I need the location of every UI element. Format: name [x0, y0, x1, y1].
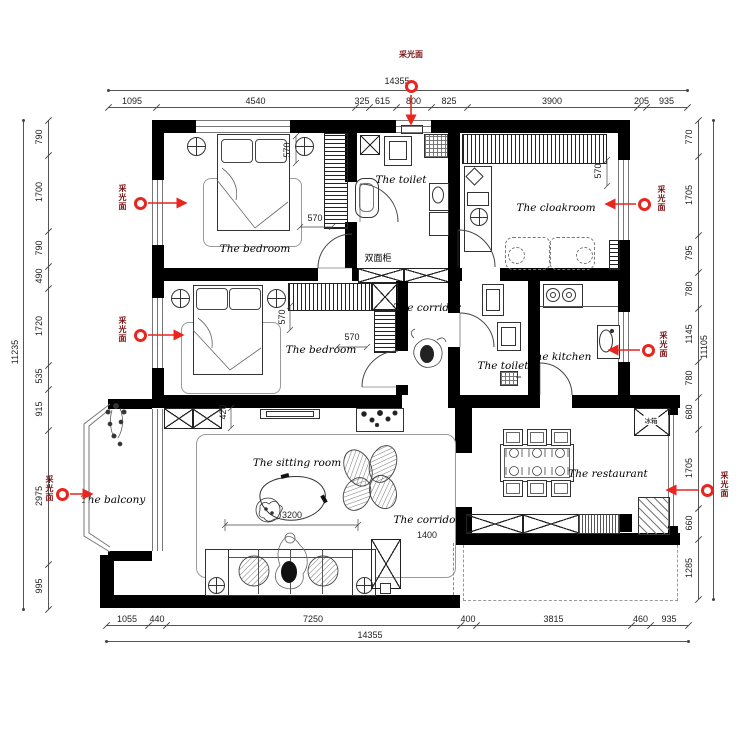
dim-right-value: 770	[684, 122, 694, 152]
plan-element	[84, 404, 110, 552]
dim-sofa-span: 3200	[282, 510, 302, 520]
wall	[108, 399, 152, 409]
dim-bedroom1-bed: 570	[282, 135, 292, 165]
wall	[100, 555, 114, 608]
marker-circle-kitchen-window	[642, 344, 655, 357]
shower	[424, 134, 448, 158]
wine-rack	[578, 514, 620, 534]
balcony-bay-window	[84, 404, 110, 552]
water-heater-inner	[389, 141, 407, 160]
plan-element	[287, 327, 293, 333]
room-label-sitting: The sitting room	[253, 457, 341, 469]
wall	[572, 395, 680, 408]
pillow	[221, 139, 253, 163]
counter-edge	[540, 306, 618, 307]
dim-bottom-value: 460	[633, 614, 648, 624]
bedroom2-window	[152, 298, 164, 368]
plant-box	[356, 408, 404, 432]
dim-top-value: 825	[441, 96, 456, 106]
washing-machine	[360, 135, 380, 155]
total-end-dot	[712, 598, 715, 601]
balcony-inner-window	[152, 409, 164, 551]
toilet2-cabinet-inner	[486, 289, 500, 311]
total-end-dot	[687, 640, 690, 643]
dim-left-value: 790	[34, 233, 44, 263]
total-end-dot	[107, 89, 110, 92]
dining-chair	[503, 429, 523, 446]
dim-right-value: 1285	[684, 553, 694, 583]
corridor-dash-line	[453, 543, 455, 595]
corridor-plant	[411, 329, 446, 367]
plan-element	[362, 351, 398, 387]
double-sided-cabinet-label: 双面柜	[364, 251, 391, 264]
dim-bedroom2-bed: 570	[277, 302, 287, 332]
balcony-plant	[106, 404, 126, 446]
window	[196, 120, 290, 133]
total-dim-left: 11235	[10, 337, 20, 367]
wall	[618, 133, 630, 160]
marker-label-cloakroom-window: 采光面	[656, 185, 667, 212]
dim-top-value: 325	[354, 96, 369, 106]
wall	[528, 281, 540, 408]
dim-left-value: 1700	[34, 177, 44, 207]
wall	[618, 514, 632, 532]
dim-right-value: 660	[684, 508, 694, 538]
hall-cabinet	[371, 539, 401, 589]
dining-chair	[551, 429, 571, 446]
double-sided-cabinet	[403, 268, 450, 283]
cloakroom-wardrobe	[462, 134, 607, 164]
plan-element	[106, 410, 110, 414]
total-line-bottom	[106, 641, 688, 642]
bay-platform	[638, 497, 670, 535]
dim-left-value: 490	[34, 261, 44, 291]
wall	[290, 120, 396, 133]
room-label-restaurant: The restaurant	[568, 468, 647, 480]
dim-right-value: 780	[684, 274, 694, 304]
marker-circle-bedroom2-window	[134, 329, 147, 342]
toilet-fixture	[500, 371, 518, 386]
fridge-label: 冰箱	[644, 415, 659, 425]
wall	[152, 268, 318, 281]
total-line-top	[108, 90, 687, 91]
ceiling-lamp	[187, 137, 206, 156]
sideboard	[466, 514, 524, 534]
plan-element	[110, 410, 114, 438]
toilet1-sink	[429, 183, 449, 211]
plan-element	[540, 363, 572, 395]
dining-chair	[551, 480, 571, 497]
total-end-dot	[712, 119, 715, 122]
dim-bottom-value: 3815	[543, 614, 563, 624]
wall	[448, 395, 540, 408]
total-line-left	[23, 120, 24, 609]
wall	[448, 133, 460, 268]
switch-box	[380, 583, 391, 594]
dim-bedroom2-closet: 570	[344, 332, 359, 342]
room-label-cloakroom: The cloakroom	[516, 202, 595, 214]
table-lamp	[208, 577, 225, 594]
dim-bottom-value: 1055	[117, 614, 137, 624]
pillow	[196, 288, 228, 310]
plan-element	[118, 408, 123, 438]
plan-element	[460, 313, 494, 347]
wall	[455, 408, 472, 453]
dim-left-value: 995	[34, 571, 44, 601]
plan-element	[411, 329, 446, 342]
dim-left-value: 790	[34, 122, 44, 152]
tv	[266, 411, 314, 417]
line	[290, 549, 291, 594]
dim-left-value: 915	[34, 394, 44, 424]
bedroom1-window	[152, 180, 164, 245]
window-sill	[401, 125, 423, 134]
wall	[152, 395, 402, 408]
plan-element	[89, 409, 110, 547]
dim-top-value: 615	[375, 96, 390, 106]
dim-left-value: 2975	[34, 481, 44, 511]
desk-chair	[470, 208, 488, 226]
marker-label-bedroom1-window: 采光面	[117, 184, 128, 211]
bedroom2-wardrobe	[288, 283, 372, 311]
room-label-corridor-mid: The corridor	[394, 302, 461, 314]
total-end-dot	[686, 89, 689, 92]
dim-top-value: 3900	[542, 96, 562, 106]
plan-element	[118, 442, 122, 446]
sideboard	[522, 514, 580, 534]
dim-right-value: 1705	[684, 453, 694, 483]
bathtub-inner	[359, 183, 374, 212]
room-label-bedroom1: The bedroom	[220, 243, 291, 255]
plan-element	[228, 425, 234, 431]
dim-bottom-value: 935	[661, 614, 676, 624]
marker-label-entry-window: 采光面	[399, 49, 423, 60]
ceiling-lamp	[295, 137, 314, 156]
room-label-toilet1: The toilet	[375, 174, 426, 186]
marker-circle-restaurant-window	[701, 484, 714, 497]
dim-cloakroom-closet: 570	[593, 156, 603, 186]
wall	[431, 120, 630, 133]
marker-label-balcony-window: 采光面	[44, 475, 55, 502]
room-label-balcony: The balcony	[81, 494, 146, 506]
floor-plan-canvas: The bedroom The toilet The cloakroom The…	[0, 0, 740, 740]
total-dim-bottom: 14355	[357, 630, 382, 640]
dim-right-value: 1705	[684, 180, 694, 210]
dim-right-value: 680	[684, 397, 694, 427]
plan-element	[364, 344, 370, 350]
plan-element	[293, 160, 299, 166]
marker-circle-entry-window	[405, 80, 418, 93]
marker-label-kitchen-window: 采光面	[658, 331, 669, 358]
lower-dashed-region	[463, 545, 678, 601]
dim-right-value: 780	[684, 363, 694, 393]
dim-bottom-line	[106, 625, 688, 626]
marker-circle-cloakroom-window	[638, 198, 651, 211]
kitchen-sink	[597, 325, 620, 359]
ceiling-lamp	[171, 289, 190, 308]
line	[258, 549, 259, 594]
total-end-dot	[22, 608, 25, 611]
dim-top-value: 1095	[122, 96, 142, 106]
marker-circle-bedroom1-window	[134, 197, 147, 210]
cloakroom-window	[618, 160, 630, 240]
dim-top-value: 800	[406, 96, 421, 106]
dim-left-value: 535	[34, 361, 44, 391]
dim-bottom-value: 440	[149, 614, 164, 624]
bedroom2-wardrobe-side	[374, 309, 396, 353]
room-label-corridor-lower: The corridor	[394, 514, 461, 526]
cloakroom-corner-hatch	[609, 240, 620, 270]
dim-corridor-width: 1400	[417, 530, 437, 540]
plan-element	[108, 422, 112, 426]
bedroom1-wardrobe	[324, 133, 348, 229]
dining-table	[500, 444, 574, 482]
marker-label-bedroom2-window: 采光面	[117, 316, 128, 343]
toilet1-shelf	[429, 212, 449, 236]
wall	[100, 595, 460, 608]
wall	[108, 551, 152, 561]
dim-bottom-value: 400	[460, 614, 475, 624]
total-end-dot	[22, 119, 25, 122]
marker-label-restaurant-window: 采光面	[719, 471, 730, 498]
room-label-toilet2: The toilet	[477, 360, 528, 372]
room-label-bedroom2: The bedroom	[286, 344, 357, 356]
plan-element	[414, 339, 442, 368]
dining-chair	[503, 480, 523, 497]
wall	[152, 133, 164, 180]
shoe-cabinet	[164, 408, 194, 429]
wall	[152, 120, 196, 133]
dim-top-value: 935	[659, 96, 674, 106]
dim-tv-wall: 420	[218, 397, 228, 427]
monitor	[467, 192, 489, 206]
dim-left-value: 1720	[34, 311, 44, 341]
line	[322, 549, 323, 594]
dim-bottom-value: 7250	[303, 614, 323, 624]
dining-chair	[527, 480, 547, 497]
bench-cushion	[508, 247, 525, 264]
total-end-dot	[105, 640, 108, 643]
total-dim-right: 11105	[699, 332, 709, 362]
wall	[396, 385, 408, 395]
toilet2-sink-inner	[501, 327, 516, 346]
total-line-right	[713, 120, 714, 599]
wall	[448, 268, 462, 281]
marker-circle-balcony-window	[56, 488, 69, 501]
plan-element	[112, 434, 116, 438]
plan-element	[119, 420, 123, 424]
dim-top-value: 4540	[245, 96, 265, 106]
plan-element	[604, 183, 610, 189]
dim-top-value: 205	[634, 96, 649, 106]
dim-right-value: 795	[684, 238, 694, 268]
plan-element	[122, 410, 126, 414]
dining-chair	[527, 429, 547, 446]
dim-right-value: 1145	[684, 319, 694, 349]
pillow	[229, 288, 261, 310]
room-label-kitchen: The kitchen	[529, 351, 592, 363]
bench-cushion	[576, 247, 593, 264]
stove	[543, 284, 583, 308]
plan-element	[420, 345, 434, 363]
dim-bedroom1-closet: 570	[307, 213, 322, 223]
